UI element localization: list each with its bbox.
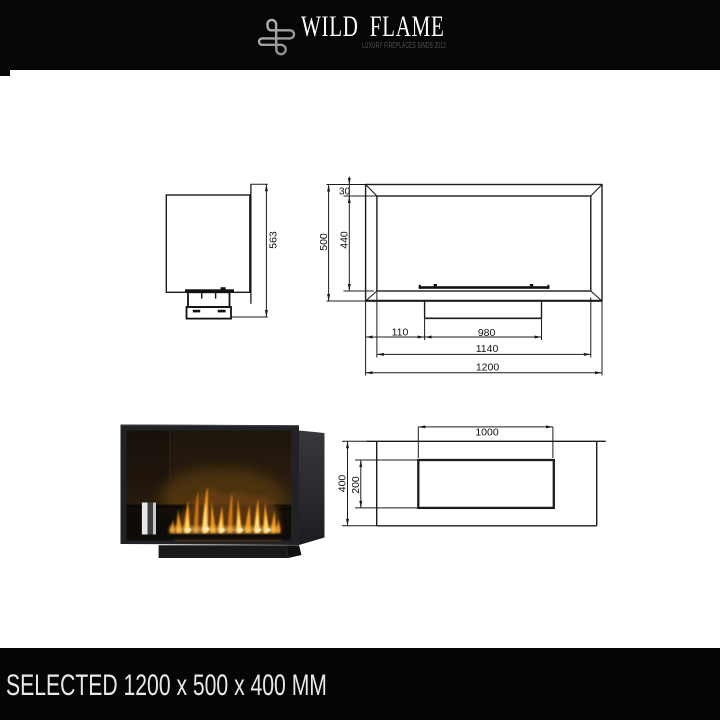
svg-text:980: 980 — [478, 327, 496, 339]
svg-text:440: 440 — [339, 231, 351, 249]
svg-text:30: 30 — [339, 186, 351, 197]
svg-text:1140: 1140 — [476, 343, 499, 355]
svg-text:1000: 1000 — [475, 426, 499, 438]
svg-text:500: 500 — [318, 233, 330, 251]
svg-text:200: 200 — [350, 476, 362, 494]
svg-text:400: 400 — [337, 475, 349, 493]
svg-text:563: 563 — [268, 231, 280, 249]
svg-text:1200: 1200 — [476, 361, 500, 373]
svg-text:110: 110 — [392, 326, 409, 338]
